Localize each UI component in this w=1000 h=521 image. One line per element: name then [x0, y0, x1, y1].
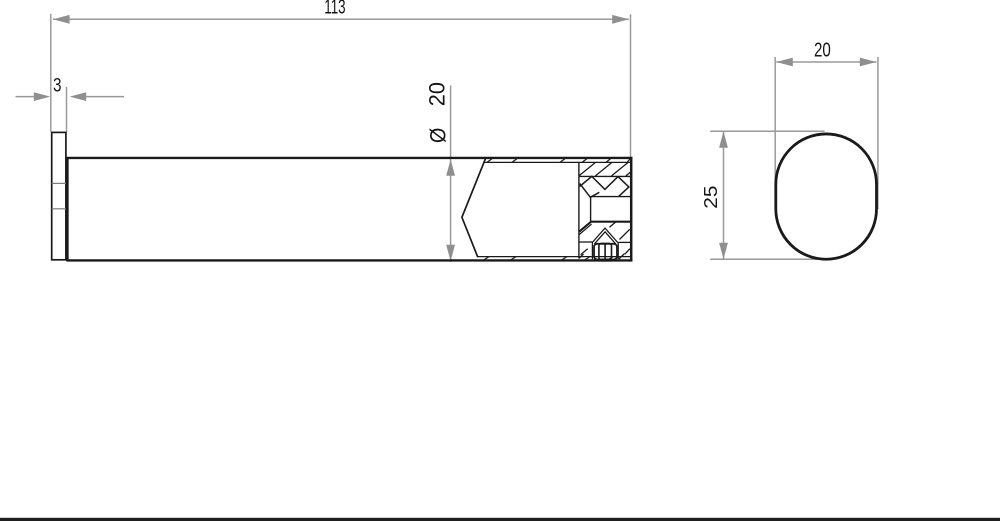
svg-text:20: 20 [425, 82, 450, 106]
svg-text:20: 20 [814, 40, 831, 62]
svg-text:25: 25 [701, 186, 721, 209]
svg-text:113: 113 [324, 0, 345, 19]
svg-text:3: 3 [53, 75, 62, 96]
svg-text:Ø: Ø [426, 128, 451, 143]
